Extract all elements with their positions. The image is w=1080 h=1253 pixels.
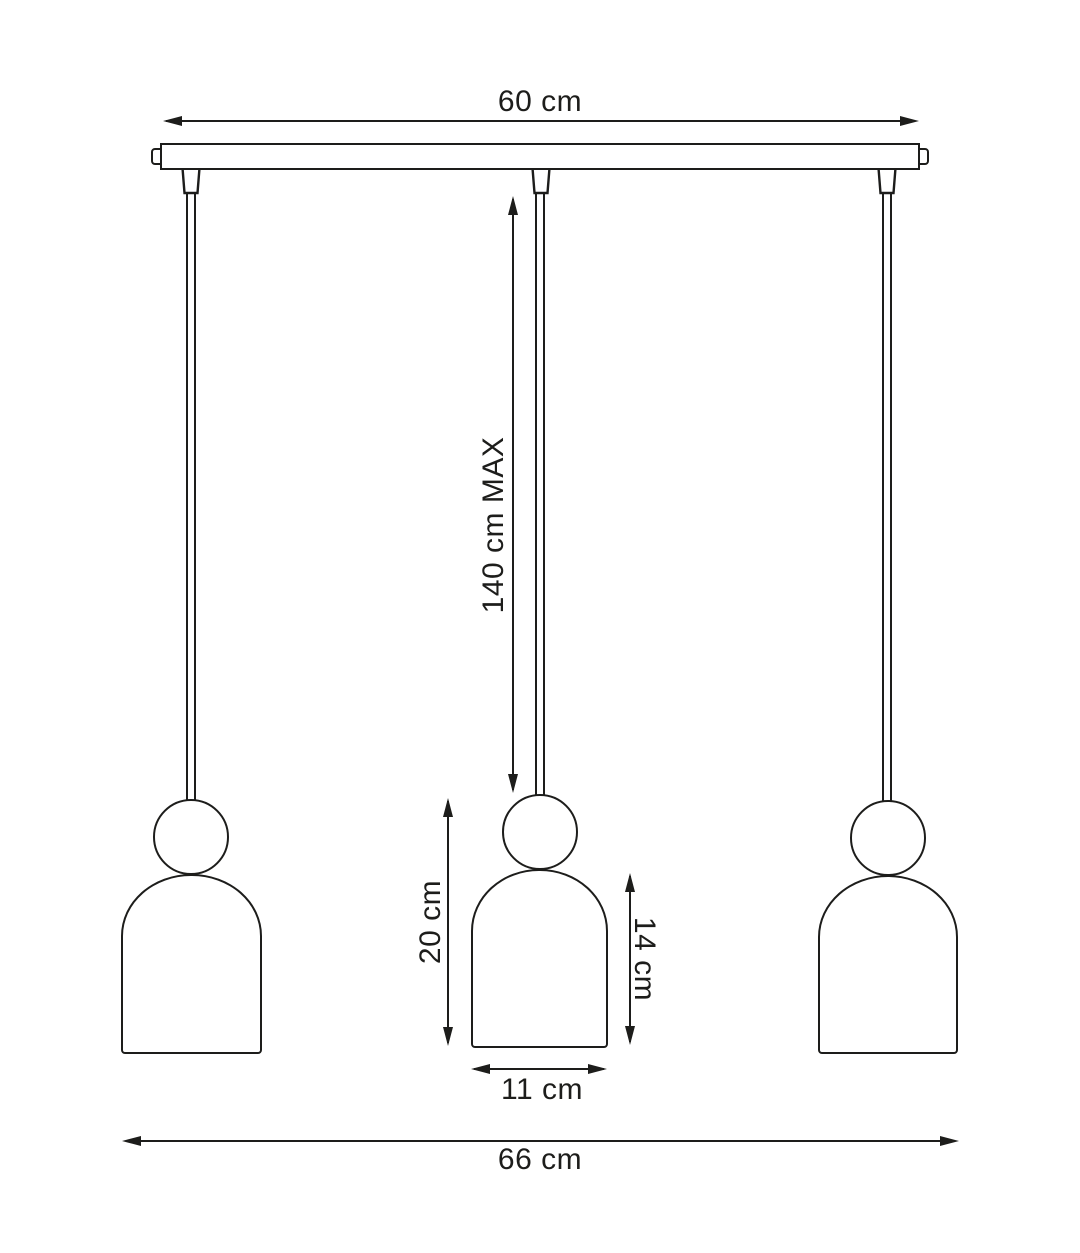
arrowhead-up-icon bbox=[625, 873, 635, 892]
dim-bar-width-line bbox=[166, 120, 915, 122]
arrowhead-left-icon bbox=[163, 116, 182, 126]
arrowhead-right-icon bbox=[588, 1064, 607, 1074]
ceiling-bar bbox=[160, 143, 920, 170]
cord-holder-center bbox=[530, 167, 552, 195]
cord-holder-right bbox=[876, 167, 898, 195]
arrowhead-left-icon bbox=[122, 1136, 141, 1146]
arrowhead-down-icon bbox=[508, 774, 518, 793]
pendant-lamp-dimension-diagram: 60 cm 140 cm MAX 20 cm 14 cm 11 cm 66 cm bbox=[0, 0, 1080, 1253]
dim-shade-height-label: 14 cm bbox=[629, 917, 659, 1001]
cord-holder-left bbox=[180, 167, 202, 195]
arrowhead-right-icon bbox=[940, 1136, 959, 1146]
pendant-sphere-center bbox=[502, 794, 578, 870]
dim-bar-width-label: 60 cm bbox=[498, 87, 582, 117]
pendant-cord-left bbox=[186, 192, 196, 801]
dim-lamp-height-line bbox=[447, 801, 449, 1043]
pendant-sphere-right bbox=[850, 800, 926, 876]
dim-total-width-label: 66 cm bbox=[498, 1145, 582, 1175]
arrowhead-down-icon bbox=[625, 1026, 635, 1045]
arrowhead-up-icon bbox=[443, 798, 453, 817]
dim-max-drop-label: 140 cm MAX bbox=[479, 437, 509, 614]
arrowhead-up-icon bbox=[508, 196, 518, 215]
dim-shade-width-label: 11 cm bbox=[501, 1075, 583, 1105]
dim-max-drop-line bbox=[512, 199, 514, 790]
pendant-shade-center bbox=[471, 869, 608, 1048]
pendant-cord-center bbox=[535, 192, 545, 796]
pendant-sphere-left bbox=[153, 799, 229, 875]
arrowhead-down-icon bbox=[443, 1027, 453, 1046]
pendant-shade-left bbox=[121, 874, 262, 1054]
dim-lamp-height-label: 20 cm bbox=[416, 880, 446, 964]
pendant-shade-right bbox=[818, 875, 958, 1054]
arrowhead-left-icon bbox=[471, 1064, 490, 1074]
dim-shade-width-line bbox=[474, 1068, 604, 1070]
arrowhead-right-icon bbox=[900, 116, 919, 126]
pendant-cord-right bbox=[882, 192, 892, 802]
